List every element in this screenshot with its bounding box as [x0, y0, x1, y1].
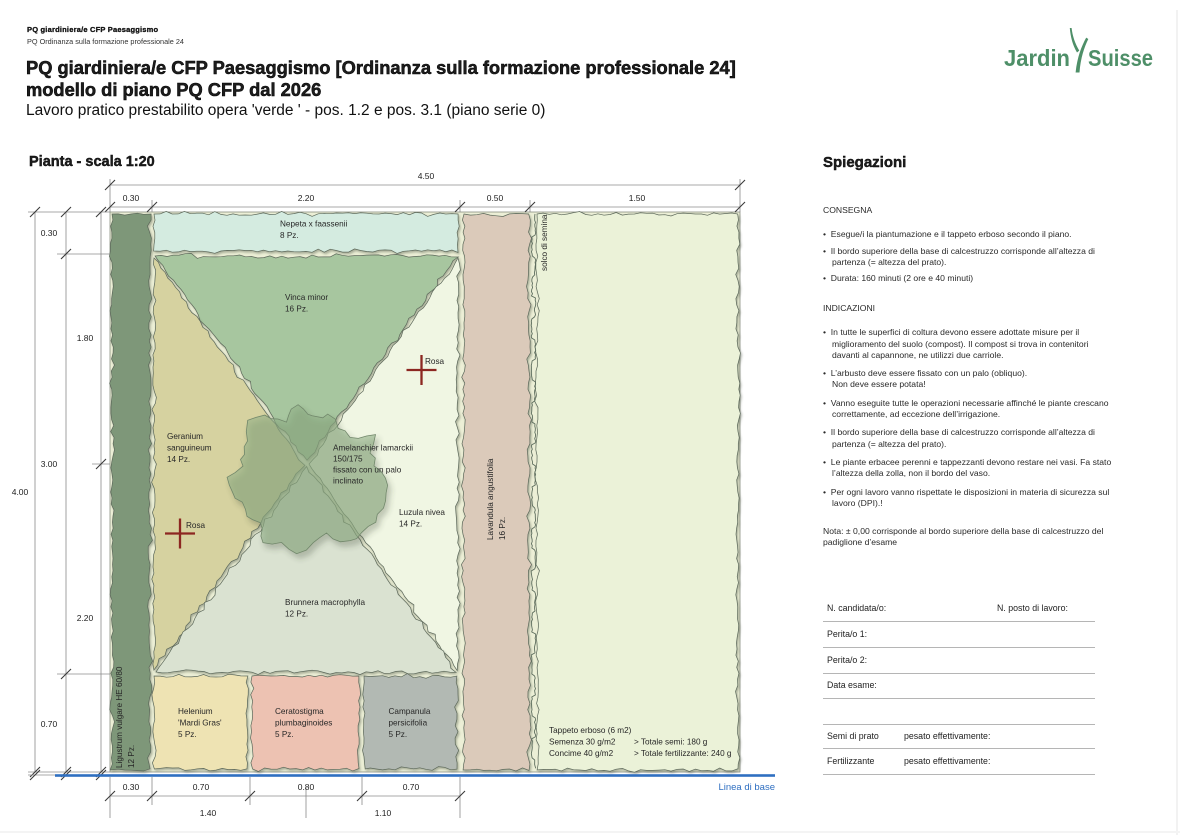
svg-text:Amelanchier lamarckii: Amelanchier lamarckii: [333, 444, 413, 453]
svg-text:inclinato: inclinato: [333, 477, 363, 486]
svg-text:0.80: 0.80: [298, 782, 315, 792]
svg-text:0.70: 0.70: [193, 782, 210, 792]
svg-text:Vinca minor: Vinca minor: [285, 293, 328, 302]
svg-text:> Totale fertilizzante: 240 g: > Totale fertilizzante: 240 g: [634, 749, 732, 758]
svg-text:Linea di base: Linea di base: [718, 782, 775, 793]
svg-text:14 Pz.: 14 Pz.: [399, 520, 422, 529]
svg-text:plumbaginoides: plumbaginoides: [275, 719, 332, 728]
svg-text:0.30: 0.30: [123, 193, 140, 203]
svg-text:Campanula: Campanula: [389, 707, 431, 716]
svg-text:1.50: 1.50: [629, 193, 646, 203]
svg-text:Lavandula angustifolia: Lavandula angustifolia: [486, 458, 495, 540]
svg-text:Concime 40 g/m2: Concime 40 g/m2: [549, 749, 614, 758]
svg-text:150/175: 150/175: [333, 455, 363, 464]
svg-text:Geranium: Geranium: [167, 432, 203, 441]
svg-text:5 Pz.: 5 Pz.: [389, 730, 408, 739]
svg-text:5 Pz.: 5 Pz.: [178, 730, 197, 739]
svg-text:0.30: 0.30: [41, 228, 58, 238]
svg-text:Ceratostigma: Ceratostigma: [275, 707, 324, 716]
svg-text:14 Pz.: 14 Pz.: [167, 455, 190, 464]
svg-text:Tappeto erboso (6 m2): Tappeto erboso (6 m2): [549, 726, 632, 735]
svg-text:Luzula nivea: Luzula nivea: [399, 508, 445, 517]
svg-text:1.80: 1.80: [77, 333, 94, 343]
svg-text:16 Pz.: 16 Pz.: [498, 517, 507, 540]
svg-text:> Totale semi: 180 g: > Totale semi: 180 g: [634, 738, 708, 747]
svg-text:2.20: 2.20: [298, 193, 315, 203]
svg-text:12 Pz.: 12 Pz.: [127, 745, 136, 768]
svg-text:fissato con un palo: fissato con un palo: [333, 466, 402, 475]
svg-text:4.00: 4.00: [12, 487, 29, 497]
svg-text:Nepeta x faassenii: Nepeta x faassenii: [280, 220, 348, 229]
svg-text:3.00: 3.00: [41, 459, 58, 469]
svg-text:1.10: 1.10: [375, 808, 392, 818]
svg-text:2.20: 2.20: [77, 613, 94, 623]
svg-text:0.50: 0.50: [487, 193, 504, 203]
svg-text:Helenium: Helenium: [178, 707, 213, 716]
svg-text:8 Pz.: 8 Pz.: [280, 231, 299, 240]
svg-text:Rosa: Rosa: [186, 521, 206, 530]
svg-text:solco di semina: solco di semina: [540, 214, 549, 271]
svg-text:0.70: 0.70: [403, 782, 420, 792]
svg-text:1.40: 1.40: [200, 808, 217, 818]
svg-text:16 Pz.: 16 Pz.: [285, 305, 308, 314]
svg-text:Suisse: Suisse: [1088, 45, 1153, 71]
svg-text:Rosa: Rosa: [425, 357, 445, 366]
svg-text:sanguineum: sanguineum: [167, 444, 212, 453]
svg-text:4.50: 4.50: [418, 171, 435, 181]
svg-text:Semenza 30 g/m2: Semenza 30 g/m2: [549, 738, 616, 747]
svg-text:persicifolia: persicifolia: [389, 719, 428, 728]
svg-text:Brunnera macrophylla: Brunnera macrophylla: [285, 598, 366, 607]
svg-text:Jardin: Jardin: [1004, 45, 1070, 71]
svg-text:12 Pz.: 12 Pz.: [285, 610, 308, 619]
svg-text:5 Pz.: 5 Pz.: [275, 730, 294, 739]
svg-text:'Mardi Gras': 'Mardi Gras': [178, 719, 222, 728]
svg-text:Ligustrum vulgare HE 60/80: Ligustrum vulgare HE 60/80: [115, 666, 124, 768]
svg-text:0.70: 0.70: [41, 719, 58, 729]
svg-text:0.30: 0.30: [123, 782, 140, 792]
